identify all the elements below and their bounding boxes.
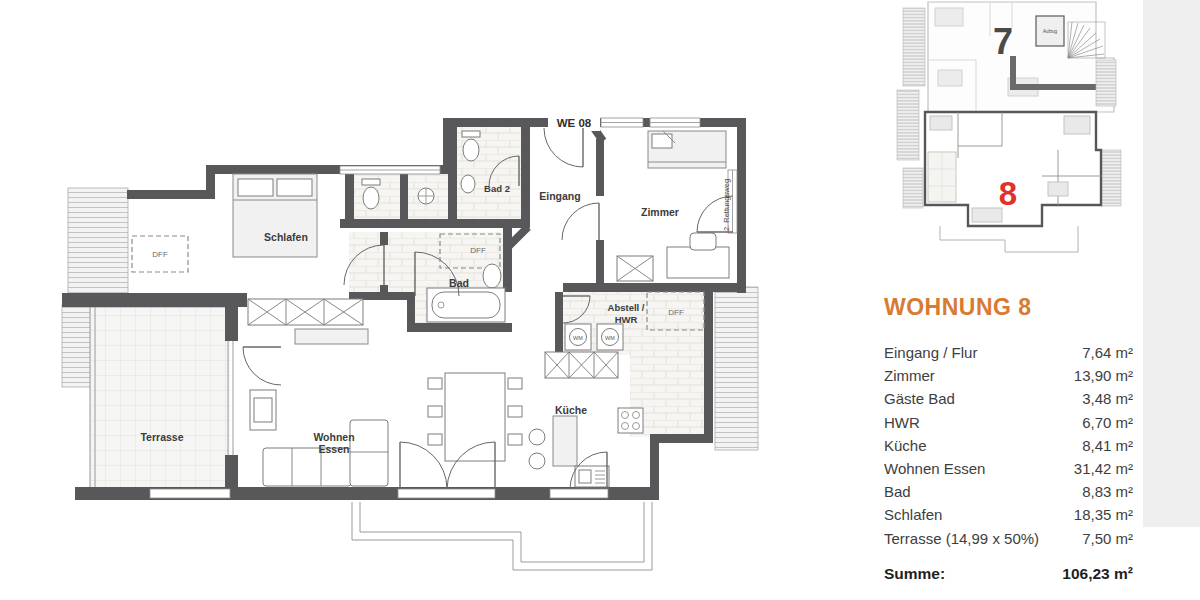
desk-zimmer [667,233,729,278]
kitchen-sink [575,466,609,487]
unit-tag-label: WE 08 [557,117,592,129]
kitchen-cabinets [545,352,618,378]
label-aufzug: Aufzug [1043,29,1058,34]
wardrobe-schlafen [248,299,368,344]
label-dff-2: DFF [470,246,486,255]
stove [618,408,643,433]
building-overview: Aufzug 7 [878,0,1148,270]
kitchen-island [553,416,577,466]
label-dff-1: DFF [152,250,168,259]
table-row: Eingang / Flur7,64 m² [884,341,1133,364]
room-label: Schlafen [884,503,942,526]
bed-schlafen [233,174,317,257]
room-area: 3,48 m² [1082,387,1133,410]
table-row: Gäste Bad3,48 m² [884,387,1133,410]
x-box-zimmer [617,256,653,281]
room-label: Wohnen Essen [884,457,985,480]
room-area: 6,70 m² [1082,411,1133,434]
right-gray-strip [1143,0,1200,527]
area-table: Eingang / Flur7,64 m² Zimmer13,90 m² Gäs… [884,341,1133,550]
table-row: Küche8,41 m² [884,434,1133,457]
table-row: Bad8,83 m² [884,480,1133,503]
table-row: HWR6,70 m² [884,411,1133,434]
toilet-bad2 [462,131,480,161]
room-label: Küche [884,434,927,457]
panel-title: WOHNUNG 8 [884,294,1133,321]
room-area: 13,90 m² [1074,364,1133,387]
sum-value: 106,23 m² [1062,562,1133,586]
terrace-floor [90,307,230,488]
room-label: Gäste Bad [884,387,955,410]
sink-bad2 [461,175,475,193]
room-area: 18,35 m² [1074,503,1133,526]
room-label: Terrasse (14,99 x 50%) [884,527,1039,550]
table-row: Zimmer13,90 m² [884,364,1133,387]
label-bad2: Bad 2 [484,183,510,194]
wm-label: WM [573,335,583,341]
stool [529,453,545,469]
toilet-gaeste-wc [362,179,380,209]
table-row: Schlafen18,35 m² [884,503,1133,526]
lower-balcony-outline [352,502,652,570]
label-kueche: Küche [555,404,587,416]
room-area: 7,50 m² [1082,527,1133,550]
label-terrasse: Terrasse [140,431,183,443]
room-area: 8,41 m² [1082,434,1133,457]
overview-unit7-number[interactable]: 7 [993,21,1013,62]
tv-board [250,390,276,430]
room-label: Zimmer [884,364,935,387]
label-bad: Bad [449,277,469,289]
overview-unit7 [928,2,1114,112]
apartment-data-panel: WOHNUNG 8 Eingang / Flur7,64 m² Zimmer13… [884,294,1133,586]
label-rettungsweg: 2. Rettungsweg [722,179,731,231]
overview-unit8-number[interactable]: 8 [999,175,1017,212]
sum-row: Summe: 106,23 m² [884,562,1133,586]
table-row: Wohnen Essen31,42 m² [884,457,1133,480]
room-label: Eingang / Flur [884,341,977,364]
wm-label: WM [605,335,615,341]
dining-set [428,373,522,461]
floor-plan: WE 08 [0,0,880,600]
sum-label: Summe: [884,562,945,586]
sink-bad [483,264,501,288]
room-label: Bad [884,480,911,503]
label-schlafen: Schlafen [264,231,308,243]
room-area: 8,83 m² [1082,480,1133,503]
page: WE 08 [0,0,1200,600]
room-area: 7,64 m² [1082,341,1133,364]
label-abstell-1: Abstell / [608,302,645,313]
shower [418,188,434,204]
label-wohnen: Wohnen [313,431,354,443]
label-essen: Essen [319,443,350,455]
room-label: HWR [884,411,920,434]
bathtub [427,288,505,322]
room-area: 31,42 m² [1074,457,1133,480]
roof-hatch-right [715,287,758,450]
label-abstell-2: HWR [615,314,638,325]
bed-zimmer [648,131,726,168]
label-dff-3: DFF [668,308,684,317]
label-eingang: Eingang [539,190,580,202]
table-row: Terrasse (14,99 x 50%)7,50 m² [884,527,1133,550]
stool [529,429,545,445]
label-zimmer: Zimmer [641,206,679,218]
